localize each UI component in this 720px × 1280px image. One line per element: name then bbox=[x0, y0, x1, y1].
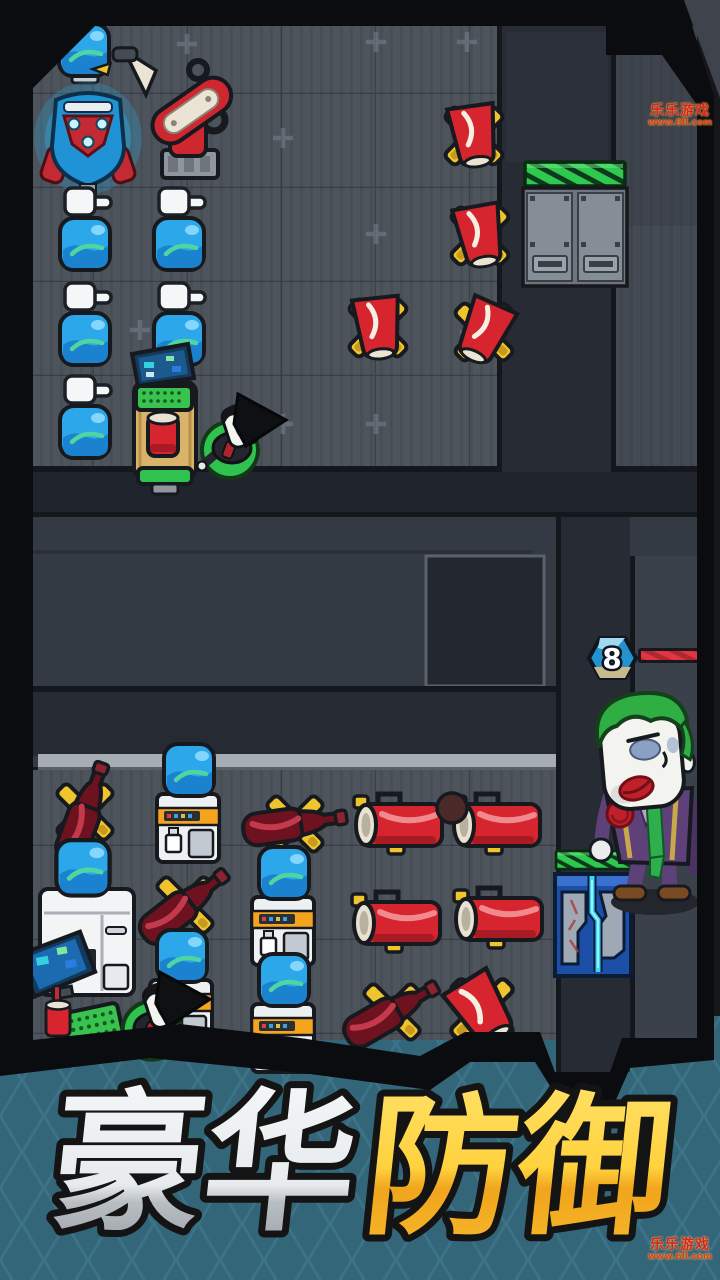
energy-core-machine[interactable] bbox=[34, 82, 142, 196]
enemy-head bbox=[594, 689, 698, 811]
watermark-url: www.6ll.com bbox=[641, 119, 719, 128]
water-cooler[interactable] bbox=[157, 744, 219, 862]
water-dispenser[interactable] bbox=[60, 376, 111, 458]
water-dispenser[interactable] bbox=[154, 188, 205, 270]
soda-can-turret[interactable] bbox=[352, 892, 440, 952]
water-cooler[interactable] bbox=[252, 847, 314, 965]
wall-top-room bbox=[33, 472, 697, 518]
watermark-top: 乐乐游戏 www.6ll.com bbox=[641, 104, 719, 128]
enemy-level: 8 bbox=[602, 642, 621, 675]
hallway-panel bbox=[426, 556, 544, 686]
watermark-bottom: 乐乐游戏 www.6ll.com bbox=[641, 1238, 719, 1262]
banner-title-white: 豪华 bbox=[43, 1075, 366, 1252]
water-dispenser[interactable] bbox=[60, 188, 111, 270]
level-badge: 8 bbox=[589, 638, 636, 678]
computer-desk[interactable] bbox=[132, 344, 196, 494]
green-hazard-bar bbox=[525, 162, 625, 186]
game-screenshot: 8 豪华 防御 乐乐游戏 www.6ll.com 乐乐游戏 www.6ll.co… bbox=[0, 0, 720, 1280]
game-scene: 8 豪华 防御 bbox=[0, 0, 720, 1280]
water-dispenser[interactable] bbox=[60, 283, 111, 365]
watermark-url: www.6ll.com bbox=[641, 1253, 719, 1262]
watermark-brand: 乐乐游戏 bbox=[641, 1238, 719, 1253]
soda-can-turret[interactable] bbox=[454, 888, 542, 948]
enemy-glove bbox=[590, 839, 612, 861]
banner-title-gold: 防御 bbox=[357, 1079, 680, 1256]
soda-can-turret[interactable] bbox=[354, 794, 442, 854]
wall-trim bbox=[38, 754, 556, 769]
wall-bottom-room bbox=[33, 692, 556, 756]
watermark-brand: 乐乐游戏 bbox=[641, 104, 719, 119]
lockers[interactable] bbox=[523, 188, 627, 286]
